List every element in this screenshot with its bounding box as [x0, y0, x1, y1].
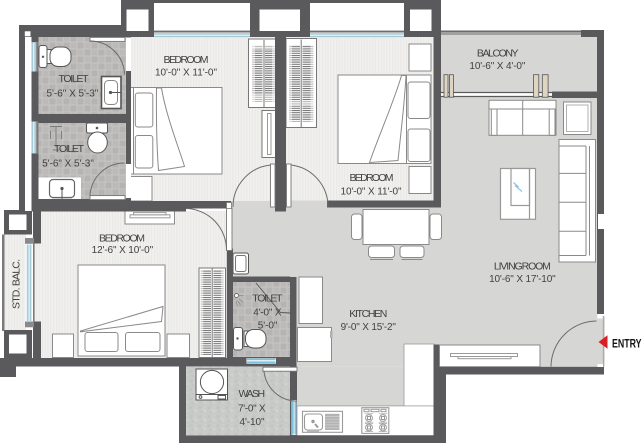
- svg-text:4'-0" X: 4'-0" X: [253, 307, 282, 318]
- svg-text:TOILET: TOILET: [54, 143, 85, 155]
- svg-text:BEDROOM: BEDROOM: [99, 232, 145, 244]
- svg-text:BALCONY: BALCONY: [477, 47, 519, 59]
- svg-text:LIVINGROOM: LIVINGROOM: [494, 261, 551, 273]
- svg-text:BEDROOM: BEDROOM: [164, 54, 209, 66]
- svg-text:12'-6" X 10'-0": 12'-6" X 10'-0": [92, 245, 154, 256]
- svg-text:7'-0" X: 7'-0" X: [238, 403, 266, 414]
- svg-text:TOILET: TOILET: [59, 73, 90, 85]
- svg-text:10'-6" X 4'-0": 10'-6" X 4'-0": [469, 61, 525, 72]
- svg-text:KITCHEN: KITCHEN: [349, 308, 387, 320]
- svg-text:5'-6" X 5'-3": 5'-6" X 5'-3": [47, 89, 99, 100]
- svg-text:9'-0" X 15'-2": 9'-0" X 15'-2": [341, 322, 397, 333]
- svg-text:10'-6" X 17'-10": 10'-6" X 17'-10": [489, 274, 556, 285]
- svg-text:5'-0": 5'-0": [258, 321, 278, 332]
- svg-text:WASH: WASH: [239, 388, 266, 400]
- svg-text:STD. BALC.: STD. BALC.: [11, 259, 23, 309]
- svg-text:5'-6" X 5'-3": 5'-6" X 5'-3": [42, 158, 94, 169]
- svg-text:BEDROOM: BEDROOM: [350, 172, 394, 184]
- svg-text:ENTRY: ENTRY: [612, 336, 642, 350]
- svg-text:TOILET: TOILET: [252, 293, 283, 305]
- svg-text:10'-0" X 11'-0": 10'-0" X 11'-0": [155, 68, 217, 79]
- svg-text:10'-0" X 11'-0": 10'-0" X 11'-0": [341, 186, 402, 197]
- svg-text:4'-10": 4'-10": [240, 417, 265, 428]
